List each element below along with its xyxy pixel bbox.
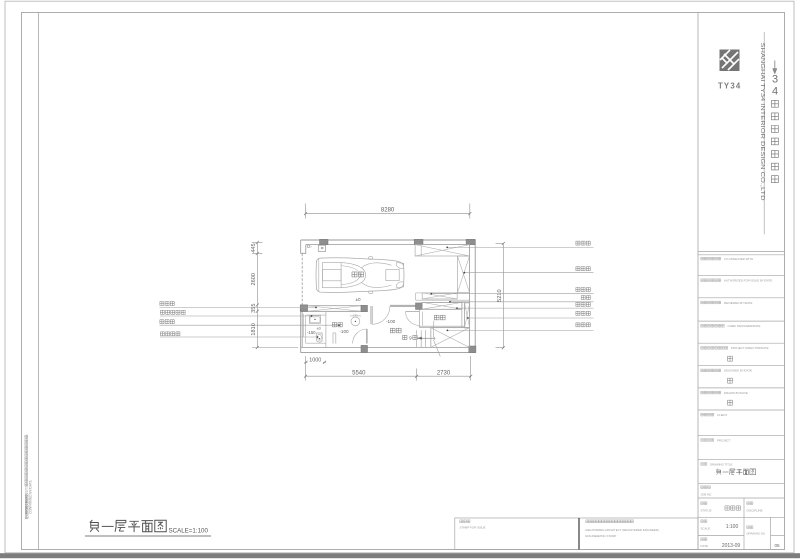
svg-text:DRAWING NO.: DRAWING NO. [747, 532, 766, 536]
svg-text:CO-OPERATED WITH: CO-OPERATED WITH [724, 257, 753, 261]
svg-text:REGISTERED ARCHITECT (REGISTE: REGISTERED ARCHITECT (REGISTERED ENGINEE… [586, 528, 659, 532]
svg-text:-100: -100 [339, 329, 349, 334]
svg-text:ENGINEERING STAMP: ENGINEERING STAMP [586, 534, 617, 538]
svg-text:-150: -150 [307, 330, 316, 335]
svg-text:8280: 8280 [381, 207, 395, 213]
svg-text:PROJECT DIRECTOR/DATE: PROJECT DIRECTOR/DATE [731, 346, 769, 350]
svg-text:1:100: 1:100 [726, 524, 739, 530]
svg-text:2600: 2600 [251, 273, 257, 285]
svg-text:5540: 5540 [352, 370, 366, 376]
svg-text:TY34: TY34 [718, 82, 741, 91]
svg-text:2730: 2730 [437, 370, 451, 376]
svg-text:±0: ±0 [317, 326, 321, 330]
svg-text:CLIENT: CLIENT [717, 413, 728, 417]
svg-text:STAMP FOR ISSUE: STAMP FOR ISSUE [460, 526, 486, 530]
svg-text:STATUS: STATUS [701, 509, 712, 513]
svg-text:5210: 5210 [497, 289, 503, 301]
svg-text:DESIGNED BY/DATE: DESIGNED BY/DATE [724, 369, 752, 373]
svg-text:AUTHORIZED FOR ISSUE BY/DATE: AUTHORIZED FOR ISSUE BY/DATE [724, 279, 772, 283]
svg-text:JOB NO.: JOB NO. [701, 493, 713, 497]
svg-text:2013-09: 2013-09 [722, 543, 741, 549]
svg-text:CHIEF DESIGNER/DATE: CHIEF DESIGNER/DATE [728, 324, 761, 328]
svg-text:DRAWN BY/DATE: DRAWN BY/DATE [724, 391, 748, 395]
svg-text:DISCIPLINE: DISCIPLINE [747, 509, 763, 513]
svg-text:-100: -100 [386, 319, 396, 324]
svg-text:PROJECT: PROJECT [717, 438, 731, 442]
svg-text:SHANGHAI TY34 INTERIOR DESIGN: SHANGHAI TY34 INTERIOR DESIGN CO.,LTD [759, 43, 765, 201]
svg-text:REVIEWED BY/DATE: REVIEWED BY/DATE [724, 301, 752, 305]
svg-text:05: 05 [774, 543, 780, 548]
svg-text:445: 445 [251, 243, 257, 252]
svg-text:CONFIRMED BY/DATE: CONFIRMED BY/DATE [29, 480, 33, 514]
svg-text:DATE: DATE [701, 544, 709, 548]
svg-text:SCALE: SCALE [701, 527, 711, 531]
svg-text:DRAWING TITLE: DRAWING TITLE [710, 462, 733, 466]
svg-text:4: 4 [772, 86, 778, 98]
svg-text:9: 9 [409, 335, 412, 340]
svg-text:3: 3 [772, 74, 778, 86]
svg-text:1000: 1000 [309, 357, 321, 363]
svg-text:SCALE=1:100: SCALE=1:100 [169, 528, 209, 535]
svg-text:±0: ±0 [355, 297, 361, 302]
svg-text:355: 355 [251, 303, 257, 312]
